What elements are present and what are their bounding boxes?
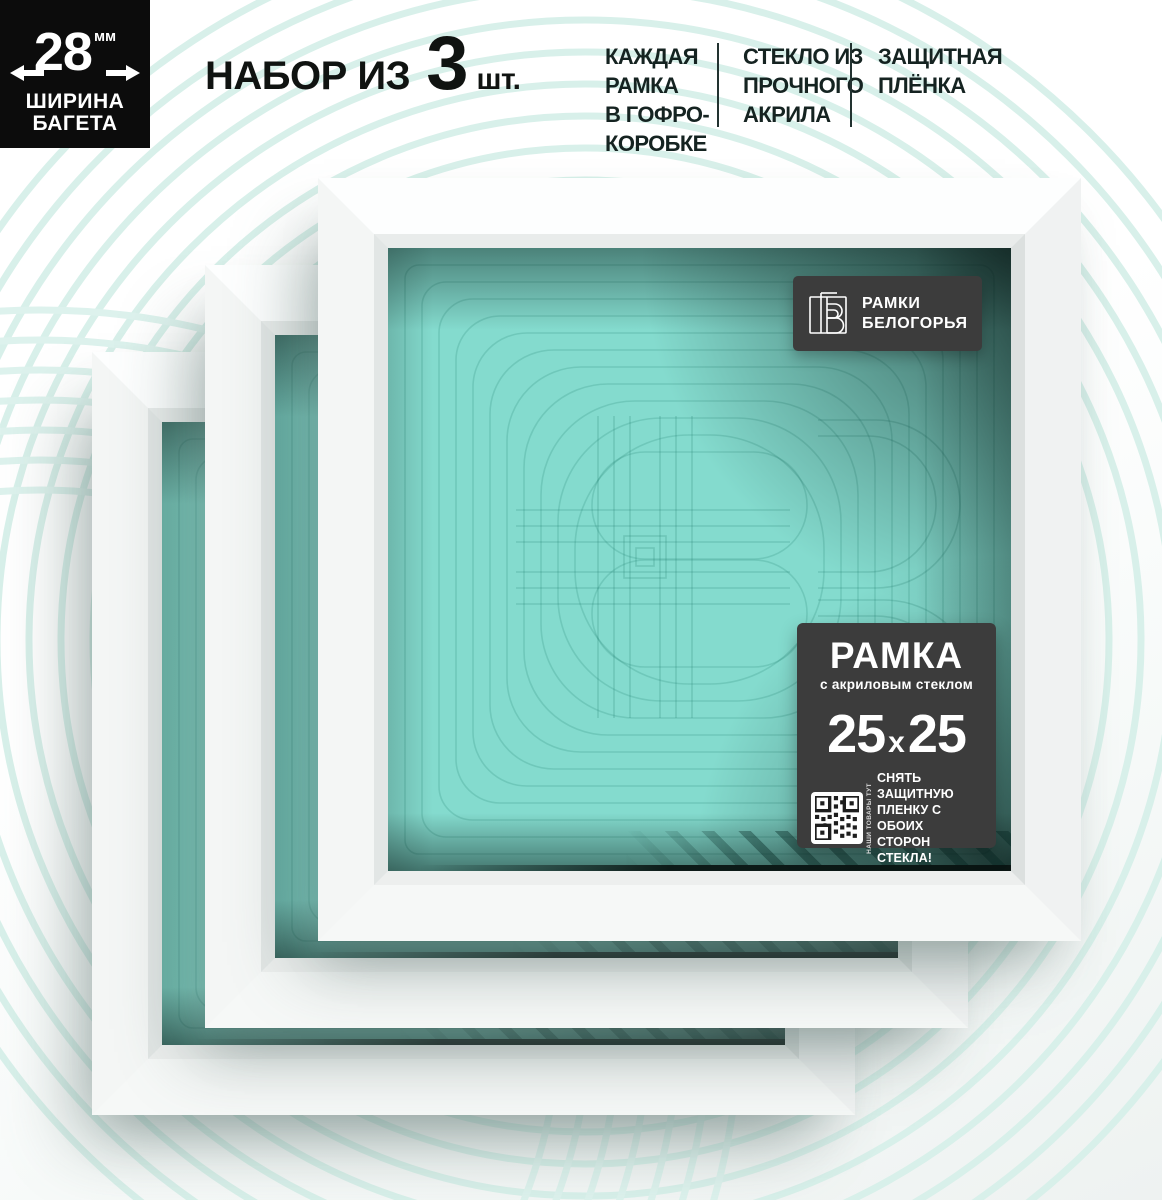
product-image: РАМКИ БЕЛОГОРЬЯ РАМКА с акриловым стекло… xyxy=(0,0,1162,1200)
qr-code xyxy=(811,792,863,844)
badge-caption: ШИРИНА БАГЕТА xyxy=(0,91,150,135)
picture-frame-front: РАМКИ БЕЛОГОРЬЯ РАМКА с акриловым стекло… xyxy=(318,178,1081,941)
size-label-subtitle: с акриловым стеклом xyxy=(820,677,973,692)
divider xyxy=(850,43,852,127)
arrow-left-icon xyxy=(10,64,44,82)
frame-glass: РАМКИ БЕЛОГОРЬЯ РАМКА с акриловым стекло… xyxy=(388,248,1011,871)
feature-packaging: КАЖДАЯ РАМКА В ГОФРО- КОРОБКЕ xyxy=(605,42,709,158)
headline: НАБОР ИЗ 3 шт. xyxy=(205,26,520,102)
headline-count: 3 xyxy=(426,26,466,102)
headline-prefix: НАБОР ИЗ xyxy=(205,54,410,99)
divider xyxy=(717,43,719,127)
brand-logo-icon xyxy=(807,292,851,336)
brand-name: РАМКИ БЕЛОГОРЬЯ xyxy=(862,294,968,334)
protective-film-note: СНЯТЬ ЗАЩИТНУЮ ПЛЕНКУ С ОБОИХ СТОРОН СТЕ… xyxy=(877,770,982,866)
width-unit: мм xyxy=(94,28,116,45)
qr-caption: НАШИ ТОВАРЫ ТУТ xyxy=(866,783,873,854)
headline-suffix: шт. xyxy=(477,63,521,97)
arrow-right-icon xyxy=(106,64,140,82)
size-label-title: РАМКА xyxy=(830,637,963,675)
moulding-width-badge: 28 мм ШИРИНА БАГЕТА xyxy=(0,0,150,148)
feature-acrylic-glass: СТЕКЛО ИЗ ПРОЧНОГО АКРИЛА xyxy=(743,42,863,129)
feature-protective-film: ЗАЩИТНАЯ ПЛЁНКА xyxy=(878,42,1002,100)
brand-label: РАМКИ БЕЛОГОРЬЯ xyxy=(793,276,982,351)
frame-size: 25х25 xyxy=(827,705,966,763)
size-label: РАМКА с акриловым стеклом 25х25 xyxy=(797,623,996,848)
